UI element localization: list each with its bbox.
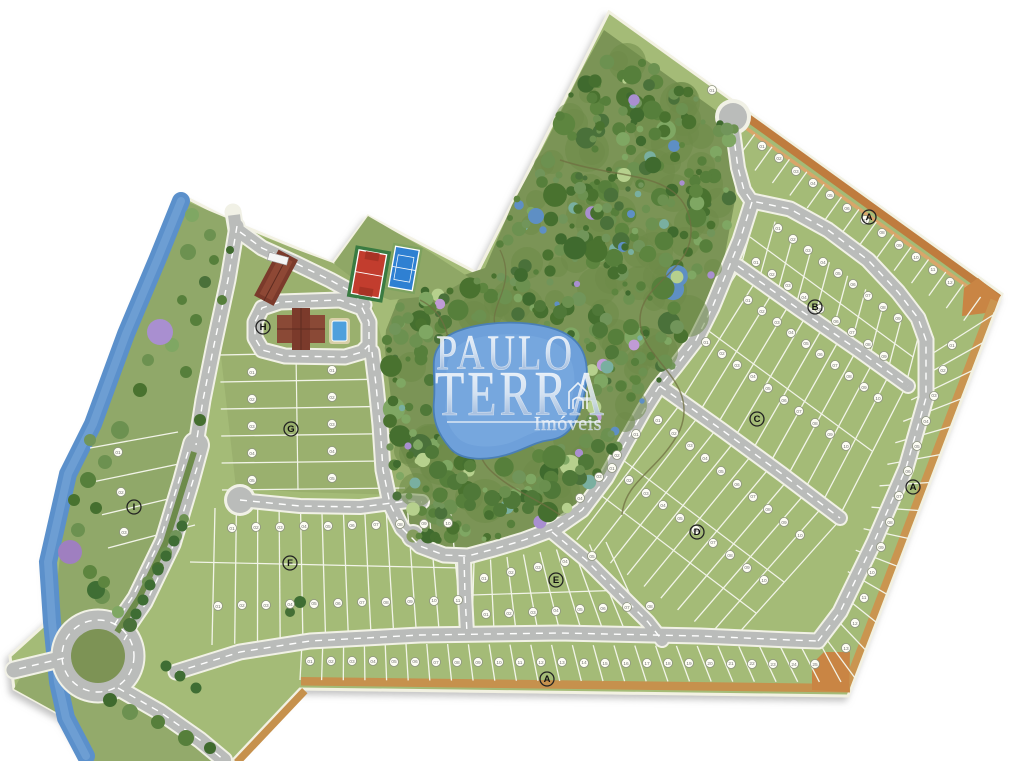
svg-text:04: 04 xyxy=(287,602,293,608)
svg-text:03: 03 xyxy=(793,169,799,175)
svg-text:03: 03 xyxy=(643,491,649,497)
svg-text:02: 02 xyxy=(118,490,124,496)
svg-text:01: 01 xyxy=(633,432,639,438)
svg-text:01: 01 xyxy=(655,418,661,424)
svg-text:03: 03 xyxy=(121,530,127,536)
svg-text:01: 01 xyxy=(703,340,709,346)
svg-text:05: 05 xyxy=(835,271,841,277)
svg-text:09: 09 xyxy=(407,599,413,605)
svg-text:04: 04 xyxy=(370,659,376,665)
svg-text:02: 02 xyxy=(328,659,334,665)
svg-text:08: 08 xyxy=(880,305,886,311)
svg-text:02: 02 xyxy=(790,237,796,243)
svg-text:07: 07 xyxy=(832,363,838,369)
svg-text:08: 08 xyxy=(454,660,460,666)
svg-text:02: 02 xyxy=(719,351,725,357)
svg-text:09: 09 xyxy=(475,660,481,666)
svg-text:04: 04 xyxy=(660,503,666,509)
svg-text:03: 03 xyxy=(931,393,937,399)
svg-text:07: 07 xyxy=(710,540,716,546)
svg-text:08: 08 xyxy=(879,230,885,236)
svg-text:01: 01 xyxy=(481,576,487,582)
svg-text:06: 06 xyxy=(412,659,418,665)
svg-text:04: 04 xyxy=(801,295,807,301)
svg-text:05: 05 xyxy=(311,601,317,607)
svg-text:F: F xyxy=(287,558,293,569)
svg-text:05: 05 xyxy=(803,341,809,347)
svg-text:11: 11 xyxy=(518,660,523,666)
svg-text:08: 08 xyxy=(765,507,771,513)
svg-text:07: 07 xyxy=(373,522,379,528)
svg-text:09: 09 xyxy=(781,520,787,526)
svg-text:03: 03 xyxy=(349,659,355,665)
svg-text:07: 07 xyxy=(359,600,365,606)
svg-text:05: 05 xyxy=(391,659,397,665)
svg-text:05: 05 xyxy=(765,386,771,392)
svg-text:04: 04 xyxy=(788,330,794,336)
svg-text:06: 06 xyxy=(335,601,341,607)
svg-text:01: 01 xyxy=(329,368,335,374)
svg-text:02: 02 xyxy=(671,431,677,437)
svg-text:01: 01 xyxy=(483,612,489,618)
svg-text:11: 11 xyxy=(862,595,867,601)
svg-text:05: 05 xyxy=(325,524,331,530)
svg-text:10: 10 xyxy=(431,598,437,604)
svg-text:10: 10 xyxy=(496,660,502,666)
svg-text:D: D xyxy=(694,527,701,538)
svg-text:A: A xyxy=(910,482,917,493)
svg-text:09: 09 xyxy=(881,354,887,360)
svg-text:20: 20 xyxy=(707,661,713,667)
svg-text:04: 04 xyxy=(750,374,756,380)
svg-text:04: 04 xyxy=(301,524,307,530)
svg-text:24: 24 xyxy=(791,662,797,668)
svg-text:09: 09 xyxy=(744,565,750,571)
svg-text:12: 12 xyxy=(947,280,953,286)
svg-text:05: 05 xyxy=(329,476,335,482)
svg-text:06: 06 xyxy=(734,482,740,488)
svg-text:04: 04 xyxy=(820,260,826,266)
svg-text:01: 01 xyxy=(745,298,751,304)
svg-text:07: 07 xyxy=(896,494,902,500)
svg-text:I: I xyxy=(133,502,136,513)
svg-text:14: 14 xyxy=(581,660,587,666)
svg-text:25: 25 xyxy=(812,662,818,668)
svg-text:18: 18 xyxy=(665,661,671,667)
svg-text:06: 06 xyxy=(781,398,787,404)
svg-text:02: 02 xyxy=(759,309,765,315)
svg-text:01: 01 xyxy=(249,370,255,376)
svg-text:04: 04 xyxy=(702,456,708,462)
svg-text:03: 03 xyxy=(535,565,541,571)
svg-text:01: 01 xyxy=(307,659,313,665)
svg-text:05: 05 xyxy=(249,478,255,484)
svg-text:03: 03 xyxy=(277,525,283,531)
svg-text:02: 02 xyxy=(506,611,512,617)
svg-text:06: 06 xyxy=(349,523,355,529)
svg-text:11: 11 xyxy=(456,598,461,604)
svg-text:05: 05 xyxy=(589,554,595,560)
svg-text:G: G xyxy=(287,424,294,435)
svg-text:05: 05 xyxy=(577,607,583,613)
svg-text:09: 09 xyxy=(827,432,833,438)
svg-text:02: 02 xyxy=(614,453,620,459)
svg-text:02: 02 xyxy=(940,368,946,374)
svg-text:10: 10 xyxy=(797,533,803,539)
svg-text:04: 04 xyxy=(249,451,255,457)
svg-text:02: 02 xyxy=(776,156,782,162)
svg-text:10: 10 xyxy=(869,570,875,576)
svg-text:07: 07 xyxy=(624,605,630,611)
svg-text:04: 04 xyxy=(577,496,583,502)
svg-text:23: 23 xyxy=(770,662,776,668)
svg-text:10: 10 xyxy=(875,396,881,402)
svg-text:09: 09 xyxy=(878,545,884,551)
svg-text:04: 04 xyxy=(810,181,816,187)
svg-text:01: 01 xyxy=(753,260,759,266)
svg-text:06: 06 xyxy=(833,319,839,325)
svg-text:01: 01 xyxy=(215,604,221,610)
svg-text:03: 03 xyxy=(263,603,269,609)
svg-text:08: 08 xyxy=(812,421,818,427)
svg-text:02: 02 xyxy=(769,272,775,278)
svg-text:08: 08 xyxy=(846,374,852,380)
svg-text:09: 09 xyxy=(895,316,901,322)
svg-text:03: 03 xyxy=(530,610,536,616)
svg-text:08: 08 xyxy=(647,604,653,610)
svg-text:07: 07 xyxy=(865,293,871,299)
svg-text:01: 01 xyxy=(709,88,715,94)
svg-text:03: 03 xyxy=(805,248,811,254)
svg-text:08: 08 xyxy=(727,553,733,559)
svg-text:13: 13 xyxy=(559,660,565,666)
svg-text:H: H xyxy=(260,322,267,333)
svg-text:10: 10 xyxy=(913,255,919,261)
svg-text:A: A xyxy=(866,212,873,223)
svg-text:03: 03 xyxy=(249,424,255,430)
svg-text:03: 03 xyxy=(774,320,780,326)
svg-text:03: 03 xyxy=(329,422,335,428)
svg-text:10: 10 xyxy=(445,521,451,527)
svg-text:16: 16 xyxy=(623,661,629,667)
svg-text:10: 10 xyxy=(843,444,849,450)
svg-text:01: 01 xyxy=(759,144,765,150)
svg-text:12: 12 xyxy=(852,621,858,627)
svg-text:01: 01 xyxy=(609,466,615,472)
svg-text:08: 08 xyxy=(865,342,871,348)
svg-text:05: 05 xyxy=(827,193,833,199)
svg-text:06: 06 xyxy=(850,282,856,288)
svg-text:05: 05 xyxy=(718,469,724,475)
svg-text:C: C xyxy=(754,414,761,425)
svg-text:07: 07 xyxy=(796,409,802,415)
svg-text:03: 03 xyxy=(785,283,791,289)
svg-text:17: 17 xyxy=(644,661,650,667)
svg-text:02: 02 xyxy=(329,395,335,401)
svg-text:04: 04 xyxy=(553,608,559,614)
svg-text:01: 01 xyxy=(229,526,235,532)
svg-text:04: 04 xyxy=(329,449,335,455)
svg-text:11: 11 xyxy=(931,267,936,273)
svg-text:09: 09 xyxy=(861,385,867,391)
svg-text:07: 07 xyxy=(849,330,855,336)
svg-text:B: B xyxy=(812,302,819,313)
svg-text:09: 09 xyxy=(421,521,427,527)
svg-text:02: 02 xyxy=(239,603,245,609)
svg-text:21: 21 xyxy=(728,661,734,667)
svg-text:03: 03 xyxy=(687,443,693,449)
svg-text:01: 01 xyxy=(775,226,781,232)
svg-text:Imóveis: Imóveis xyxy=(534,413,602,435)
svg-text:13: 13 xyxy=(843,646,849,652)
svg-text:09: 09 xyxy=(896,243,902,249)
svg-text:19: 19 xyxy=(686,661,692,667)
svg-text:01: 01 xyxy=(115,450,121,456)
svg-text:04: 04 xyxy=(923,419,929,425)
svg-text:05: 05 xyxy=(677,516,683,522)
svg-text:06: 06 xyxy=(600,606,606,612)
svg-text:07: 07 xyxy=(750,494,756,500)
svg-text:02: 02 xyxy=(626,478,632,484)
svg-text:10: 10 xyxy=(761,578,767,584)
svg-text:15: 15 xyxy=(602,661,608,667)
svg-text:02: 02 xyxy=(253,525,259,531)
svg-text:05: 05 xyxy=(914,444,920,450)
svg-text:08: 08 xyxy=(383,600,389,606)
svg-text:E: E xyxy=(553,575,559,586)
svg-text:07: 07 xyxy=(433,660,439,666)
svg-text:06: 06 xyxy=(844,206,850,212)
svg-text:02: 02 xyxy=(508,570,514,576)
svg-text:01: 01 xyxy=(949,343,955,349)
svg-text:08: 08 xyxy=(887,520,893,526)
svg-text:02: 02 xyxy=(249,397,255,403)
svg-text:03: 03 xyxy=(734,363,740,369)
svg-text:A: A xyxy=(544,674,551,685)
svg-text:04: 04 xyxy=(562,559,568,565)
svg-text:22: 22 xyxy=(749,661,755,667)
svg-text:03: 03 xyxy=(596,474,602,480)
svg-text:12: 12 xyxy=(538,660,544,666)
svg-text:06: 06 xyxy=(905,469,911,475)
svg-text:06: 06 xyxy=(817,352,823,358)
svg-text:08: 08 xyxy=(397,522,403,528)
